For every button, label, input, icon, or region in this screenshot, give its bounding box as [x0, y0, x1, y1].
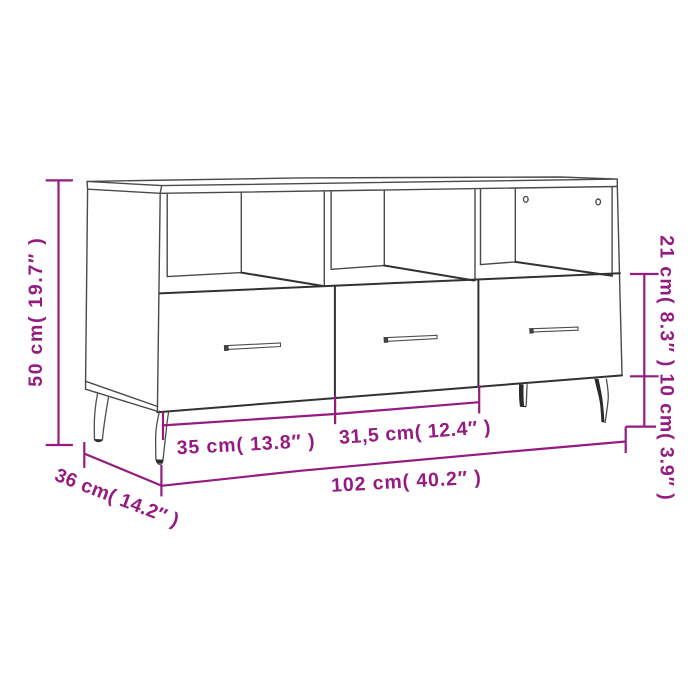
svg-text:21 cm( 8.3″ ): 21 cm( 8.3″ )	[656, 235, 678, 367]
svg-text:10 cm( 3.9″ ): 10 cm( 3.9″ )	[656, 373, 678, 500]
svg-text:50 cm( 19.7″ ): 50 cm( 19.7″ )	[25, 237, 47, 387]
